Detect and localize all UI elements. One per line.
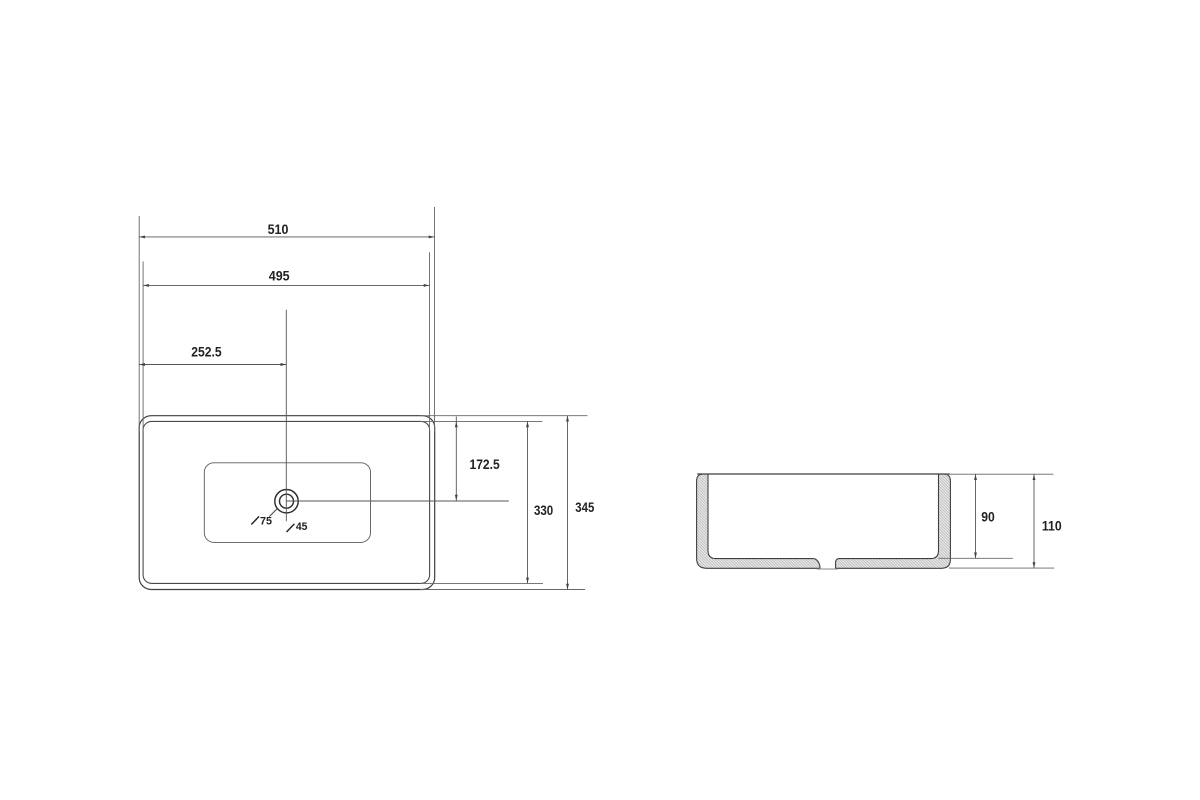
svg-text:90: 90 (981, 510, 995, 525)
svg-text:172.5: 172.5 (470, 457, 501, 472)
svg-text:495: 495 (269, 269, 290, 284)
svg-text:45: 45 (296, 521, 308, 533)
svg-text:510: 510 (268, 222, 289, 237)
svg-text:330: 330 (534, 503, 553, 518)
svg-text:252.5: 252.5 (191, 345, 222, 360)
svg-text:75: 75 (260, 515, 272, 527)
svg-text:345: 345 (575, 500, 594, 515)
svg-text:110: 110 (1042, 518, 1062, 533)
